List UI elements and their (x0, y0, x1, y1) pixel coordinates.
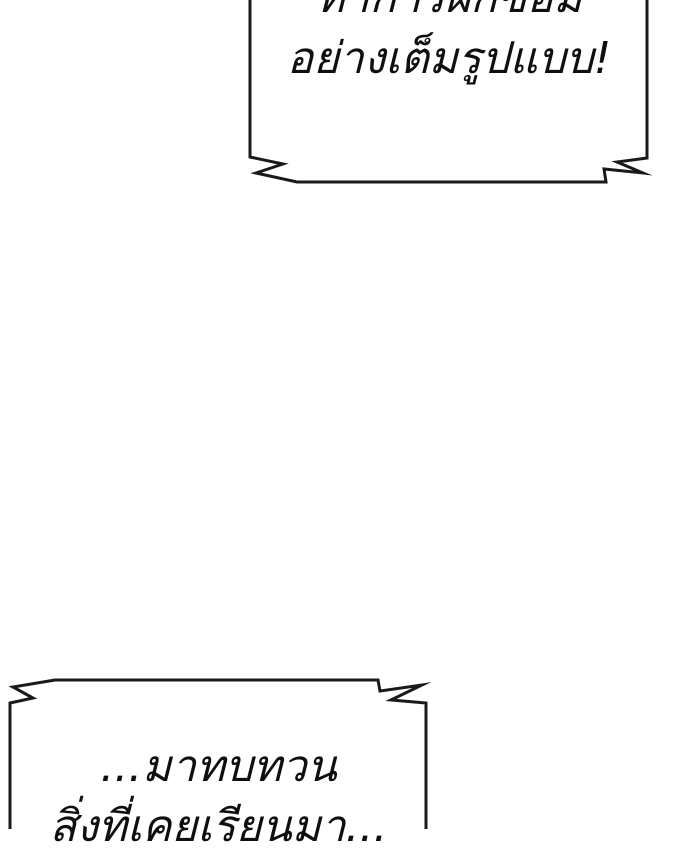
speech-bubble-bottom-outline (10, 680, 426, 829)
speech-bubble-top-outline (250, 0, 647, 182)
comic-page: ทำการฝึกซ้อม อย่างเต็มรูปแบบ! ...มาทบทวน… (0, 0, 700, 829)
speech-bubbles-layer (0, 0, 700, 829)
